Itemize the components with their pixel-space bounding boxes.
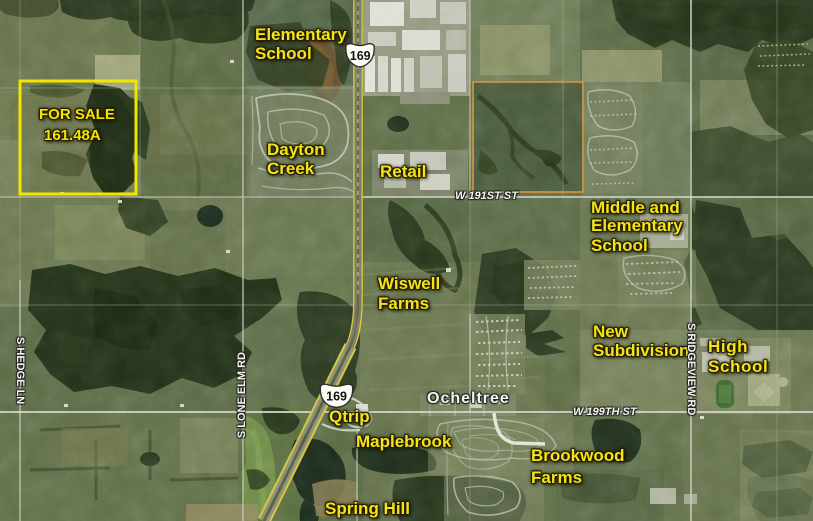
svg-text:169: 169: [350, 49, 371, 63]
svg-text:169: 169: [326, 390, 347, 404]
